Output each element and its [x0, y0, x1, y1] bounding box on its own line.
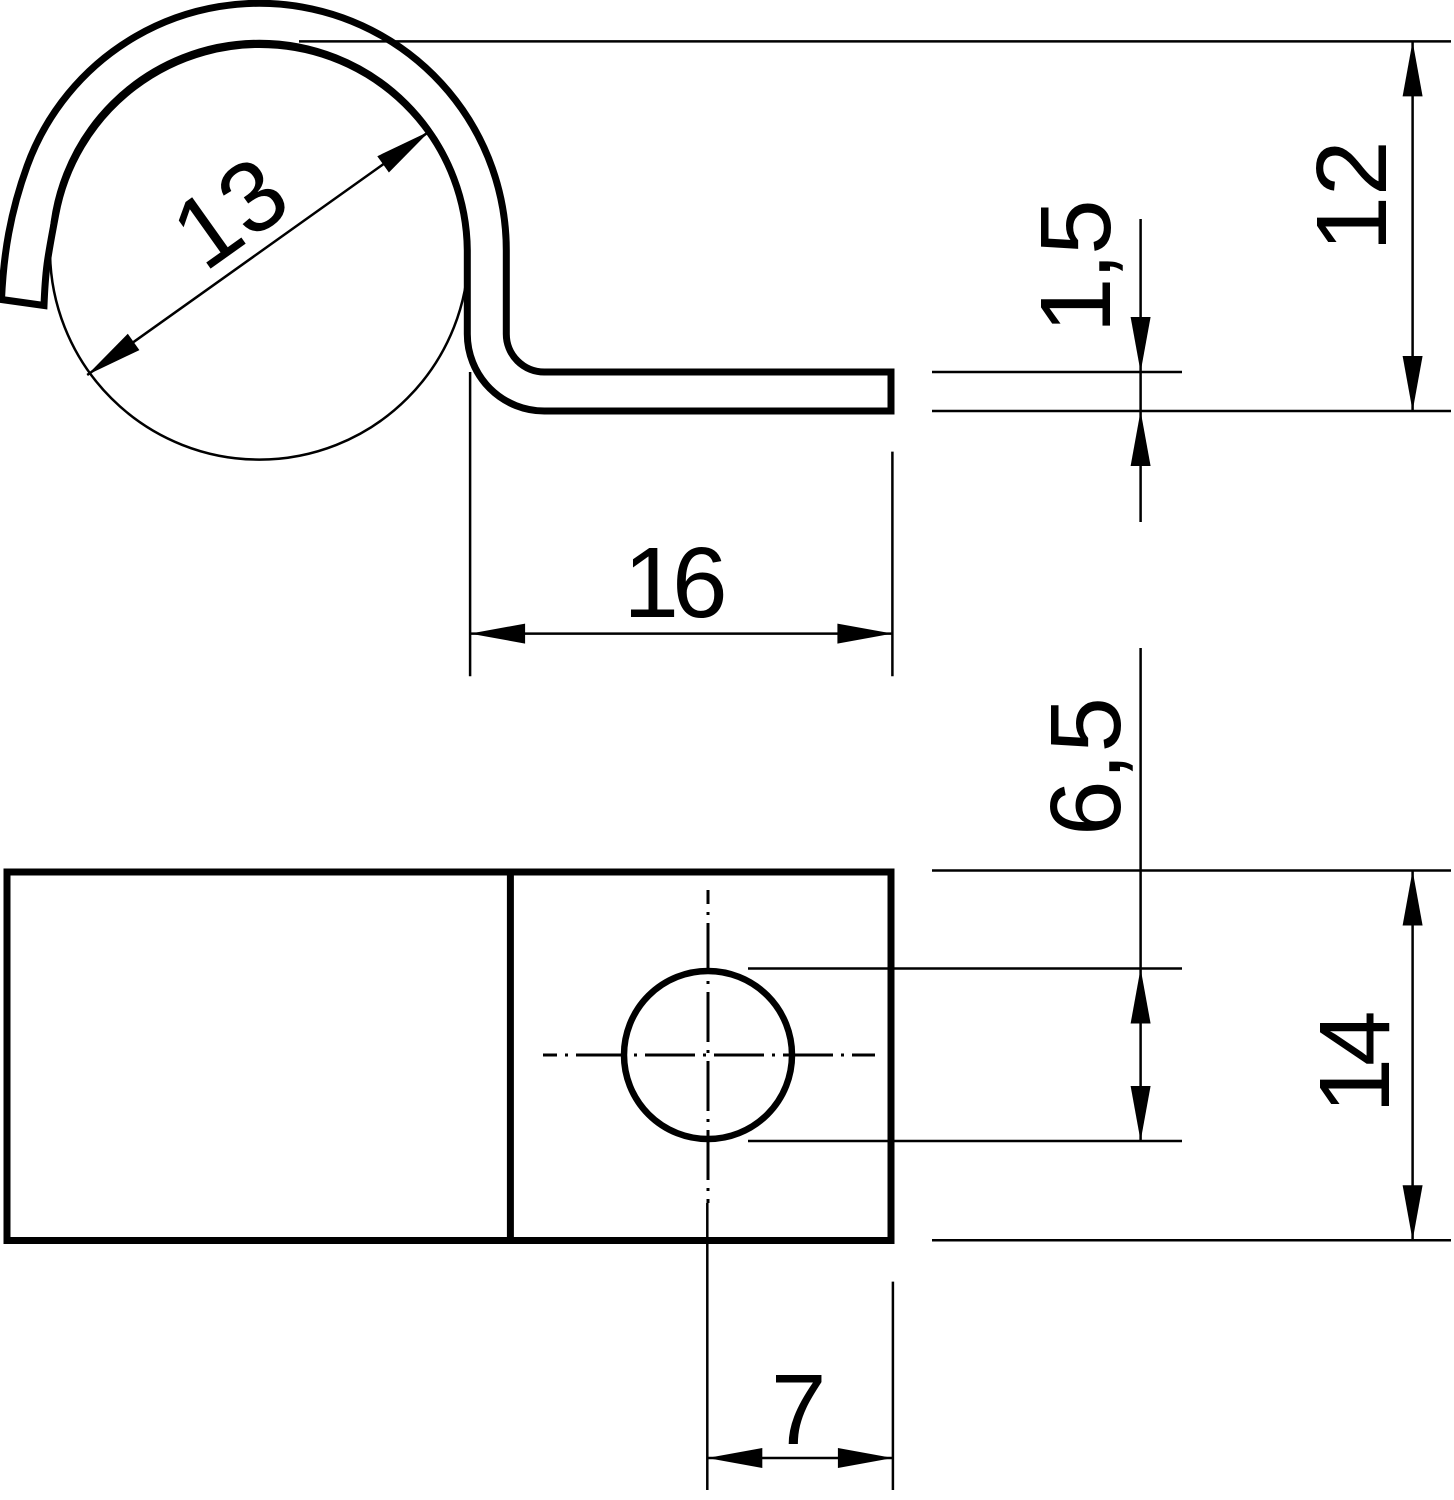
svg-text:6,5: 6,5 — [1030, 697, 1142, 836]
svg-text:16: 16 — [623, 527, 724, 639]
svg-text:12: 12 — [1296, 140, 1408, 251]
svg-text:14: 14 — [1299, 1013, 1411, 1114]
svg-text:1,5: 1,5 — [1020, 202, 1132, 334]
svg-text:7: 7 — [771, 1354, 827, 1466]
